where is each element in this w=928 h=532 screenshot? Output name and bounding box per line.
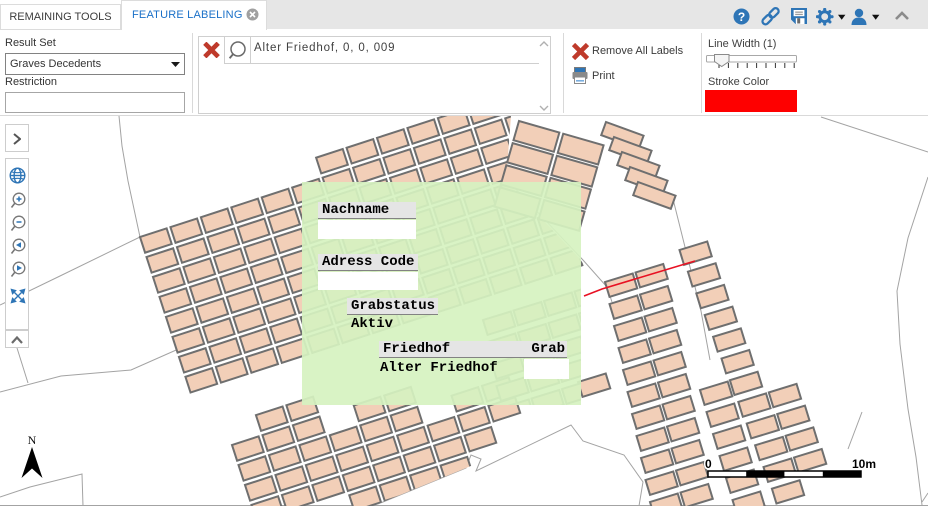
- svg-text:N: N: [28, 433, 37, 447]
- svg-text:?: ?: [738, 10, 745, 24]
- svg-text:0: 0: [705, 457, 712, 471]
- svg-text:10m: 10m: [852, 457, 876, 471]
